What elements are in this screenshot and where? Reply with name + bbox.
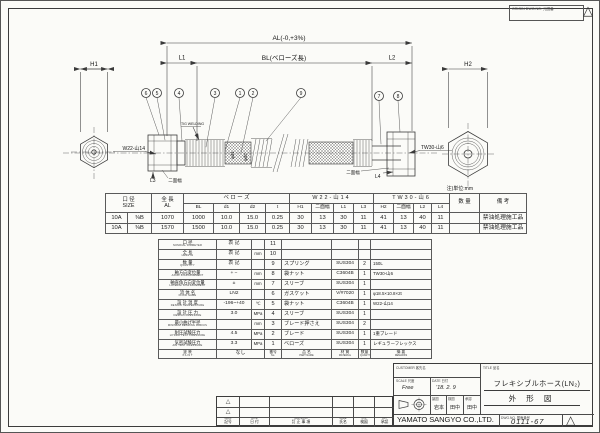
balloon-2: 2 <box>249 89 258 98</box>
dimension-table-group-header: 口 径SIZE 全 長AL ベ ロ ー ズ W22-山14 TW30-山6 数 … <box>106 194 527 204</box>
rev-col-name: NAME氏名 <box>333 417 353 427</box>
rev-col-apv: APV承認 <box>375 417 394 427</box>
spec-parts-row: 軸方向変位量AXIAL DISPLACEMENT+ −mm8袋ナットC3604B… <box>159 270 432 280</box>
spec-nm-cell: スリーブ <box>282 280 332 290</box>
dim-label-l1: L1 <box>179 56 186 62</box>
table-cell: 41 <box>374 223 394 234</box>
table-cell: 1070 <box>152 213 184 224</box>
spec-unit-cell: ℃ <box>252 300 265 310</box>
flats-left-label: 二面幅 <box>168 177 182 184</box>
dwg-no-value: 0111-67 <box>511 417 544 426</box>
table-cell: 0.25 <box>266 213 290 224</box>
title-block: CUSTOMER 客先名 TITLE 品名 フレキシブルホース(LN₂) 外 形… <box>393 363 593 426</box>
paint-label-en: P A I N T <box>160 355 215 358</box>
balloon-2-number: 2 <box>252 91 255 97</box>
table-cell: 13 <box>394 213 414 224</box>
footer-remarks-header: 摘 要REMARKS <box>371 350 432 359</box>
drawn-name: 岩本 <box>431 404 447 411</box>
footer-no-header: 番号No. <box>265 350 282 359</box>
dim-label-h2: H2 <box>464 62 472 68</box>
spec-nm-cell: ガスケット <box>282 290 332 300</box>
sub-col: d2 <box>240 204 266 213</box>
rev-col-mark: MARK記号 <box>217 417 239 427</box>
table-cell <box>450 223 480 234</box>
footer-qty-header: 数量QUANTITY <box>359 350 371 359</box>
company-name: YAMATO SANGYO CO.,LTD. <box>397 415 494 424</box>
spec-lbl-cell: 全 長LENGTH <box>159 250 217 260</box>
approved-label: 承認 <box>465 396 472 401</box>
dim-label-l3: L3 <box>150 178 156 184</box>
sub-col: H2 <box>374 204 394 213</box>
scale-label: SCALE 尺度 <box>396 378 414 383</box>
spec-rem-cell: レギュラーフレックス <box>371 340 432 350</box>
revision-mark: △ <box>217 407 239 417</box>
balloon-3: 3 <box>211 89 220 98</box>
spec-val-cell: LN2 <box>217 290 252 300</box>
spec-unit-cell <box>252 290 265 300</box>
table-cell: 30 <box>290 213 312 224</box>
spec-qty-cell: 1 <box>359 270 371 280</box>
spec-qty-cell: 1 <box>359 290 371 300</box>
sub-col: L1 <box>334 204 354 213</box>
projection-symbol-icon <box>397 397 428 412</box>
col-al: 全 長AL <box>152 194 184 213</box>
table-cell: 10.0 <box>214 213 240 224</box>
col-size: 口 径SIZE <box>106 194 152 213</box>
parts-footer-row: 塗 装 P A I N T なし 番号No. 品 名PART NAME 材 質M… <box>159 350 432 359</box>
spec-no-cell: 6 <box>265 290 282 300</box>
sub-col: d1 <box>214 204 240 213</box>
spec-lbl-cell: 設 計 温 度DESIGN TEMPERATURE <box>159 300 217 310</box>
spec-unit-cell <box>252 260 265 270</box>
title-label: TITLE 品名 <box>483 365 500 370</box>
table-cell: 11 <box>432 213 450 224</box>
spec-rem-cell: 150L <box>371 260 432 270</box>
spec-parts-row: 気密試験圧力AIR TEST PRESSURE3.3MPa1ベローズSUS304… <box>159 340 432 350</box>
spec-rem-cell <box>371 240 432 250</box>
spec-unit-cell: MPa <box>252 310 265 320</box>
table-row: 10A⅜B1570150010.015.00.25301330114113401… <box>106 223 527 234</box>
spec-unit-cell <box>252 240 265 250</box>
spec-nm-cell: ブレード <box>282 330 332 340</box>
table-cell: 1000 <box>184 213 214 224</box>
date-label: DATE 日付 <box>432 378 448 383</box>
table-cell: 30 <box>334 213 354 224</box>
table-row: 10A⅜B1070100010.015.00.25301330114113401… <box>106 213 527 224</box>
spec-qty-cell: 2 <box>359 320 371 330</box>
footer-name-header: 品 名PART NAME <box>282 350 332 359</box>
drawn-label: 製図 <box>432 396 439 401</box>
spec-qty-cell <box>359 240 371 250</box>
spec-val-cell: 表 記 <box>217 240 252 250</box>
table-cell: 10.0 <box>214 223 240 234</box>
sub-col: 二面幅 <box>394 204 414 213</box>
dim-label-h1: H1 <box>90 62 98 68</box>
weld-note-label: TIG WELDING <box>181 122 204 126</box>
balloon-7: 7 <box>375 92 384 101</box>
spec-val-cell: 3.3 <box>217 340 252 350</box>
spec-val-cell: ± <box>217 280 252 290</box>
col-group-tw30: TW30-山6 <box>374 194 450 204</box>
spec-mat-cell: SUS304 <box>332 330 359 340</box>
thread-left-label: W22-山14 <box>122 145 145 152</box>
table-cell: 13 <box>394 223 414 234</box>
spec-unit-cell: mm <box>252 250 265 260</box>
spec-no-cell: 9 <box>265 260 282 270</box>
table-cell: 40 <box>414 223 432 234</box>
balloon-4-number: 4 <box>178 91 181 97</box>
table-cell: 1500 <box>184 223 214 234</box>
spec-qty-cell: 1 <box>359 280 371 290</box>
table-cell: 15.0 <box>240 213 266 224</box>
spec-mat-cell: V/#7020 <box>332 290 359 300</box>
paint-label-cell: 塗 装 P A I N T <box>159 350 217 359</box>
dia2-label: φd2 <box>243 153 248 161</box>
balloon-3-number: 3 <box>214 91 217 97</box>
spec-val-cell: 表 記 <box>217 250 252 260</box>
rev-col-date: DATE日 付 <box>240 417 269 427</box>
table-cell: 10A <box>106 213 128 224</box>
spec-no-cell: 10 <box>265 250 282 260</box>
spec-mat-cell: SUS304 <box>332 340 359 350</box>
dimension-table: 口 径SIZE 全 長AL ベ ロ ー ズ W22-山14 TW30-山6 数 … <box>105 193 527 234</box>
grid-line <box>480 364 481 414</box>
spec-lbl-cell: 気密試験圧力AIR TEST PRESSURE <box>159 340 217 350</box>
dim-label-l4: L4 <box>375 174 381 180</box>
spec-parts-row: 設 計 圧 力DESIGN PRESSURE3.0MPa4スリーブSUS3041 <box>159 310 432 320</box>
spec-nm-cell: スプリング <box>282 260 332 270</box>
paint-value-cell: なし <box>217 350 265 359</box>
spec-rem-cell: φ18.5×10.8×2t <box>371 290 432 300</box>
centerlines <box>63 123 494 187</box>
checked-name: 田中 <box>447 404 463 411</box>
table-cell: ⅜B <box>128 213 152 224</box>
spec-val-cell: 4.5 <box>217 330 252 340</box>
drawing-title: フレキシブルホース(LN₂) <box>484 377 590 391</box>
spec-no-cell: 7 <box>265 280 282 290</box>
spec-rem-cell <box>371 310 432 320</box>
spec-parts-table: 口 径NOMINAL DIAMETER表 記11全 長LENGTH表 記mm10… <box>158 239 432 359</box>
spec-nm-cell <box>282 240 332 250</box>
table-cell: 1570 <box>152 223 184 234</box>
spec-nm-cell: スリーブ <box>282 310 332 320</box>
balloon-8: 8 <box>394 92 403 101</box>
balloon-7-number: 7 <box>378 94 381 100</box>
table-cell: 40 <box>414 213 432 224</box>
units-note: 注)単位:mm <box>447 185 473 192</box>
spec-parts-row: 耐圧試験圧力HYDRO TEST PRESSURE4.5MPa2ブレードSUS3… <box>159 330 432 340</box>
spec-nm-cell: ベローズ <box>282 340 332 350</box>
revision-table: △ △ MARK記号 DATE日 付 REVISIONS訂 正 事 項 NAME… <box>216 396 393 426</box>
dim-label-bl: BL(ベローズ長) <box>262 53 306 62</box>
spec-no-cell: 1 <box>265 340 282 350</box>
part-balloons: 6 5 4 3 1 2 9 7 8 <box>142 89 403 154</box>
spec-parts-row: 最小曲げ半径MINIMUM BENDING RADIUSmm3ブレード押さえSU… <box>159 320 432 330</box>
spec-lbl-cell: 耐圧試験圧力HYDRO TEST PRESSURE <box>159 330 217 340</box>
col-qty: 数 量 <box>450 194 480 213</box>
spec-val-cell <box>217 320 252 330</box>
spec-parts-row: 設 計 温 度DESIGN TEMPERATURE-196~+40℃5袋ナットC… <box>159 300 432 310</box>
spec-val-cell: 表 記 <box>217 260 252 270</box>
spec-val-cell: -196~+40 <box>217 300 252 310</box>
rev-col-revisions: REVISIONS訂 正 事 項 <box>270 417 332 427</box>
spec-parts-row: 数 量QUANTITY表 記9スプリングSUS3042150L <box>159 260 432 270</box>
spec-qty-cell <box>359 250 371 260</box>
sub-col: L3 <box>354 204 374 213</box>
spec-no-cell: 2 <box>265 330 282 340</box>
table-cell: 11 <box>432 223 450 234</box>
balloon-1-number: 1 <box>239 91 242 97</box>
balloon-5-number: 5 <box>156 91 159 97</box>
table-cell: 30 <box>290 223 312 234</box>
spec-lbl-cell: 口 径NOMINAL DIAMETER <box>159 240 217 250</box>
sub-col: H1 <box>290 204 312 213</box>
checked-label: 検図 <box>448 396 455 401</box>
table-cell: 10A <box>106 223 128 234</box>
date-value: '18. 2. 9 <box>436 385 456 391</box>
spec-qty-cell: 1 <box>359 340 371 350</box>
spec-parts-row: 全 長LENGTH表 記mm10 <box>159 250 432 260</box>
spec-mat-cell: C3604B <box>332 270 359 280</box>
table-cell <box>450 213 480 224</box>
spec-lbl-cell: 軸方向変位量AXIAL DISPLACEMENT <box>159 270 217 280</box>
table-cell: 30 <box>334 223 354 234</box>
table-cell: 13 <box>312 213 334 224</box>
sub-col: 二面幅 <box>312 204 334 213</box>
rev-col-chk: CHK検図 <box>354 417 374 427</box>
spec-qty-cell: 1 <box>359 310 371 320</box>
sub-col: t <box>266 204 290 213</box>
spec-rem-cell: 1重ブレード <box>371 330 432 340</box>
col-group-w22: W22-山14 <box>290 194 374 204</box>
dimension-lines: H1 H2 AL(-0,+3%) BL(ベローズ長) L1 L2 <box>80 35 487 141</box>
spec-val-cell: 3.0 <box>217 310 252 320</box>
balloon-5: 5 <box>153 89 162 98</box>
spec-unit-cell: MPa <box>252 330 265 340</box>
spec-parts-row: 軸直角方向変位量LATERAL DISPLACEMENT±mm7スリーブSUS3… <box>159 280 432 290</box>
spec-no-cell: 4 <box>265 310 282 320</box>
spec-rem-cell: W22-山14 <box>371 300 432 310</box>
spec-no-cell: 5 <box>265 300 282 310</box>
spec-mat-cell <box>332 240 359 250</box>
revision-triangle-icon: △ <box>566 414 575 426</box>
table-cell: 禁油処理施工品 <box>480 213 527 224</box>
table-cell: 13 <box>312 223 334 234</box>
spec-lbl-cell: 設 計 圧 力DESIGN PRESSURE <box>159 310 217 320</box>
sub-col: L2 <box>414 204 432 213</box>
approved-name: 田中 <box>464 404 480 411</box>
balloon-9-number: 9 <box>300 91 303 97</box>
spec-rem-cell: TW30-山6 <box>371 270 432 280</box>
spec-mat-cell: C3604B <box>332 300 359 310</box>
spec-rem-cell <box>371 320 432 330</box>
drawing-sheet: ORIGIN DWG.NO. 元図番 △ <box>0 0 600 433</box>
spec-no-cell: 3 <box>265 320 282 330</box>
flats-right-label: 二面幅 <box>346 169 360 176</box>
balloon-9: 9 <box>297 89 306 98</box>
spec-qty-cell: 2 <box>359 260 371 270</box>
table-cell: ⅜B <box>128 223 152 234</box>
spec-nm-cell: ブレード押さえ <box>282 320 332 330</box>
balloon-1: 1 <box>236 89 245 98</box>
balloon-6: 6 <box>142 89 151 98</box>
scale-value: Free <box>402 385 414 391</box>
spec-mat-cell <box>332 250 359 260</box>
spec-rem-cell <box>371 250 432 260</box>
balloon-4: 4 <box>175 89 184 98</box>
dim-label-l2: L2 <box>389 56 396 62</box>
spec-qty-cell: 1 <box>359 330 371 340</box>
spec-lbl-cell: 最小曲げ半径MINIMUM BENDING RADIUS <box>159 320 217 330</box>
spec-parts-row: 流 体 名FLUID NAMELN26ガスケットV/#70201φ18.5×10… <box>159 290 432 300</box>
spec-rem-cell <box>371 280 432 290</box>
col-group-bellows: ベ ロ ー ズ <box>184 194 290 204</box>
col-remarks: 備 考 <box>480 194 527 213</box>
drawing-subtitle: 外 形 図 <box>484 392 580 406</box>
spec-lbl-cell: 流 体 名FLUID NAME <box>159 290 217 300</box>
spec-unit-cell: mm <box>252 280 265 290</box>
table-cell: 11 <box>354 213 374 224</box>
spec-mat-cell: SUS304 <box>332 280 359 290</box>
spec-qty-cell: 1 <box>359 300 371 310</box>
grid-line <box>499 414 500 427</box>
table-cell: 禁油処理施工品 <box>480 223 527 234</box>
balloon-8-number: 8 <box>397 94 400 100</box>
spec-mat-cell: SUS304 <box>332 320 359 330</box>
table-cell: 11 <box>354 223 374 234</box>
sub-col: L4 <box>432 204 450 213</box>
footer-material-header: 材 質MATERIAL <box>332 350 359 359</box>
table-cell: 41 <box>374 213 394 224</box>
dia1-label: φd1 <box>230 151 235 159</box>
spec-unit-cell: MPa <box>252 340 265 350</box>
spec-val-cell: + − <box>217 270 252 280</box>
spec-nm-cell: 袋ナット <box>282 270 332 280</box>
spec-unit-cell: mm <box>252 320 265 330</box>
spec-lbl-cell: 軸直角方向変位量LATERAL DISPLACEMENT <box>159 280 217 290</box>
balloon-6-number: 6 <box>145 91 148 97</box>
spec-mat-cell: SUS304 <box>332 310 359 320</box>
grid-line <box>217 407 394 408</box>
spec-unit-cell: mm <box>252 270 265 280</box>
spec-nm-cell: 袋ナット <box>282 300 332 310</box>
spec-mat-cell: SUS304 <box>332 260 359 270</box>
grid-line <box>562 414 563 427</box>
revision-mark: △ <box>217 397 239 407</box>
table-cell: 0.25 <box>266 223 290 234</box>
spec-no-cell: 8 <box>265 270 282 280</box>
table-cell: 15.0 <box>240 223 266 234</box>
thread-right-label: TW30-山6 <box>421 144 444 151</box>
customer-label: CUSTOMER 客先名 <box>396 365 426 370</box>
spec-parts-row: 口 径NOMINAL DIAMETER表 記11 <box>159 240 432 250</box>
spec-nm-cell <box>282 250 332 260</box>
spec-no-cell: 11 <box>265 240 282 250</box>
spec-lbl-cell: 数 量QUANTITY <box>159 260 217 270</box>
dim-label-al: AL(-0,+3%) <box>272 35 305 42</box>
sub-col: BL <box>184 204 214 213</box>
